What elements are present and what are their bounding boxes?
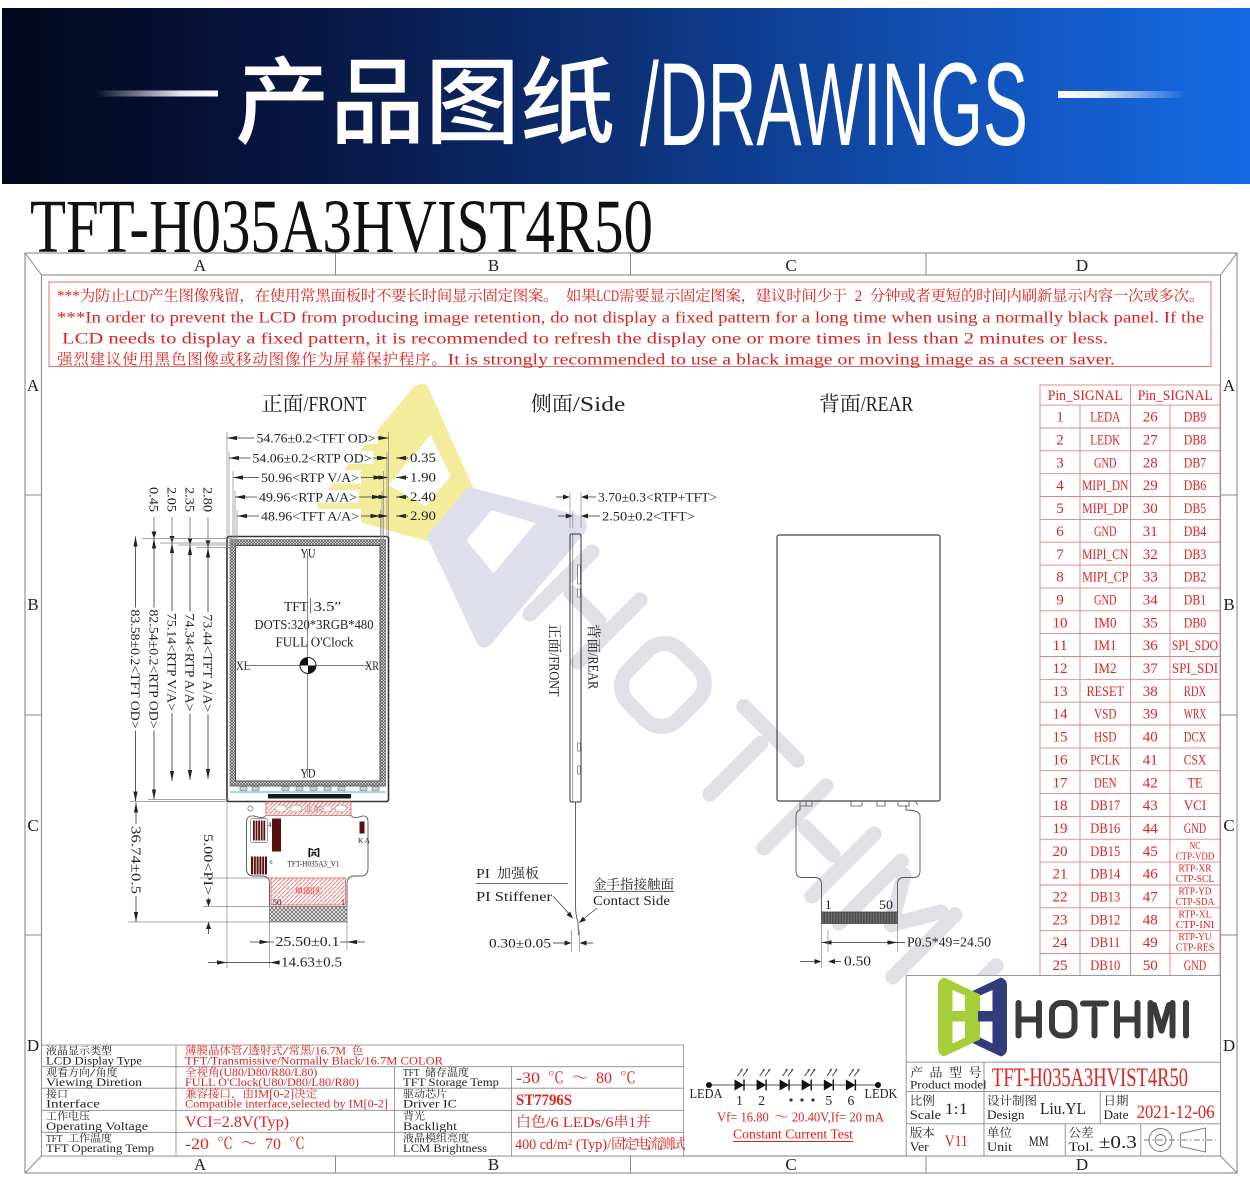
svg-text:1: 1 [825,897,832,912]
svg-text:/REAR: /REAR [861,392,914,416]
svg-text:6: 6 [1056,524,1064,540]
svg-text:GND: GND [1094,455,1117,471]
svg-text:MIPI_CN: MIPI_CN [1082,547,1128,563]
svg-text:14: 14 [1053,707,1069,723]
svg-text:18: 18 [1053,798,1068,814]
svg-text:IM2: IM2 [1094,661,1117,677]
svg-text:36.74±0.5: 36.74±0.5 [129,826,144,894]
svg-text:RDX: RDX [1184,684,1207,700]
svg-text:73.44<TFT A/A>: 73.44<TFT A/A> [201,614,215,712]
svg-text:3: 3 [1056,455,1064,471]
svg-text:54.76±0.2<TFT OD>: 54.76±0.2<TFT OD> [257,432,376,446]
svg-text:5: 5 [1056,501,1064,517]
svg-text:2.40: 2.40 [410,490,436,504]
svg-text:46: 46 [1143,867,1159,883]
svg-text:DB7: DB7 [1184,455,1207,471]
svg-text:TFT-H035A3HVIST4R50: TFT-H035A3HVIST4R50 [992,1063,1188,1092]
svg-text:Driver IC: Driver IC [403,1097,457,1111]
svg-text:MIPI_DN: MIPI_DN [1082,478,1128,494]
svg-text:Pin_SIGNAL: Pin_SIGNAL [1138,388,1213,404]
svg-text:CTP-SCL: CTP-SCL [1176,873,1215,885]
svg-text:TFT: TFT [284,600,308,615]
svg-text:1: 1 [341,898,345,907]
svg-text:37: 37 [1143,661,1159,677]
svg-text:V11: V11 [945,1133,968,1150]
svg-text:50.96<RTP V/A>: 50.96<RTP V/A> [261,471,359,485]
svg-text:P0.5*49=24.50: P0.5*49=24.50 [907,935,991,950]
svg-text:30: 30 [1143,501,1158,517]
svg-text:6: 6 [270,860,273,866]
svg-text:VCI: VCI [1184,798,1207,814]
svg-text:Date: Date [1104,1108,1129,1122]
svg-text:74.34<RTP A/A>: 74.34<RTP A/A> [183,614,197,712]
svg-text:4: 4 [1056,478,1064,494]
svg-text:***In order to prevent the LCD: ***In order to prevent the LCD from prod… [57,310,1204,327]
svg-text:A: A [1223,376,1236,395]
svg-text:RESET: RESET [1087,684,1125,700]
svg-text:It is strongly recommended to: It is strongly recommended to use a blac… [448,352,1115,369]
svg-text:DCX: DCX [1184,730,1207,746]
svg-text:±0.3: ±0.3 [1099,1132,1137,1152]
svg-text:4: 4 [268,821,272,829]
svg-text:Viewing Diretion: Viewing Diretion [46,1075,142,1089]
svg-text:LEDA: LEDA [1090,410,1120,426]
svg-text:TFT Operating Temp: TFT Operating Temp [46,1141,154,1155]
svg-text:SPI_SDI: SPI_SDI [1172,661,1218,677]
svg-text:Liu.YL: Liu.YL [1040,1099,1086,1118]
svg-text:DB1: DB1 [1184,592,1207,608]
svg-text:TFT Storage Temp: TFT Storage Temp [403,1075,499,1089]
svg-text:DB9: DB9 [1184,410,1207,426]
svg-text:10: 10 [1053,615,1068,631]
svg-text:9: 9 [1056,592,1064,608]
svg-text:80: 80 [596,1070,612,1087]
svg-text:TFT/Transmissive/Normally Blac: TFT/Transmissive/Normally Black/16.7M CO… [185,1054,443,1068]
svg-text:48: 48 [1143,912,1158,928]
svg-text:29: 29 [1143,478,1158,494]
svg-text:C: C [27,816,38,835]
svg-text:26: 26 [1143,410,1159,426]
svg-text:Constant Current Test: Constant Current Test [733,1127,853,1142]
svg-text:D: D [27,1036,39,1055]
svg-text:44: 44 [1143,821,1159,837]
svg-text:40: 40 [1143,730,1158,746]
svg-text:42: 42 [1143,775,1158,791]
svg-text:-30: -30 [516,1070,540,1087]
svg-text:83.58±0.2<TFT OD>: 83.58±0.2<TFT OD> [128,610,142,729]
svg-text:14.63±0.5: 14.63±0.5 [281,955,342,970]
svg-text:B: B [1223,595,1234,614]
svg-text:C: C [785,256,796,275]
svg-text:CTP-INI: CTP-INI [1176,919,1215,931]
svg-text:D: D [1076,1155,1088,1174]
svg-text:SPI_SDO: SPI_SDO [1172,638,1218,654]
svg-text:Ver: Ver [910,1140,930,1154]
svg-text:DB14: DB14 [1090,867,1120,883]
svg-text:DB6: DB6 [1184,478,1207,494]
svg-text:13: 13 [1053,684,1068,700]
svg-text:CTP-VDD: CTP-VDD [1176,850,1215,862]
svg-text:Unit: Unit [987,1140,1013,1154]
svg-text:***: *** [57,288,80,305]
svg-text:5.00<PI>: 5.00<PI> [201,834,215,895]
svg-text:48.96<TFT A/A>: 48.96<TFT A/A> [261,510,359,524]
svg-text:400 cd/m² (Typ)/: 400 cd/m² (Typ)/ [515,1137,612,1153]
svg-text:25: 25 [1053,958,1068,974]
svg-text:PI: PI [476,867,490,882]
svg-text:36: 36 [1143,638,1159,654]
svg-text:2.35: 2.35 [183,487,197,512]
svg-text:2.90: 2.90 [410,509,436,523]
svg-text:17: 17 [1053,775,1069,791]
svg-text:LEDA: LEDA [690,1087,724,1102]
svg-text:DB5: DB5 [1184,501,1207,517]
svg-text:LCD Display Type: LCD Display Type [46,1054,142,1068]
svg-text:35: 35 [1143,615,1158,631]
svg-text:50: 50 [1143,958,1158,974]
svg-text:DB13: DB13 [1090,890,1120,906]
svg-text:C: C [785,1155,796,1174]
svg-text:34: 34 [1143,592,1159,608]
svg-text:TE: TE [1188,775,1203,791]
svg-text:CTP-RES: CTP-RES [1176,942,1215,954]
svg-text:28: 28 [1143,455,1158,471]
svg-text:2.80: 2.80 [201,487,215,512]
svg-text:YD: YD [301,766,316,781]
svg-text:82.54±0.2<RTP OD>: 82.54±0.2<RTP OD> [147,610,161,729]
svg-text:45: 45 [1143,844,1158,860]
svg-text:0.30±0.05: 0.30±0.05 [489,936,551,951]
svg-text:DB16: DB16 [1090,821,1120,837]
svg-text:2.50±0.2<TFT>: 2.50±0.2<TFT> [602,509,695,524]
svg-text:K A: K A [358,837,370,845]
svg-text:/DRAWINGS: /DRAWINGS [640,39,1028,171]
svg-text:0.50: 0.50 [844,954,871,969]
svg-text:TFT-H035A3_V1: TFT-H035A3_V1 [288,860,340,869]
svg-text:/FRONT: /FRONT [304,392,367,416]
svg-text:31: 31 [1143,524,1158,540]
svg-text:GND: GND [1094,592,1117,608]
svg-text:VSD: VSD [1094,707,1117,723]
svg-text:Interface: Interface [46,1097,100,1111]
svg-text:MIPI_DP: MIPI_DP [1082,501,1128,517]
svg-text:A: A [194,1155,207,1174]
svg-text:HSD: HSD [1094,730,1117,746]
svg-text:-20: -20 [185,1136,209,1153]
svg-text:DOTS:320*3RGB*480: DOTS:320*3RGB*480 [255,618,374,633]
svg-text:/FRONT: /FRONT [546,653,562,697]
svg-text:LEDK: LEDK [1090,433,1120,449]
svg-text:DB11: DB11 [1090,935,1120,951]
svg-text:21: 21 [1053,867,1068,883]
svg-text:DB8: DB8 [1184,433,1207,449]
svg-text:LCD needs to display a fixed p: LCD needs to display a fixed pattern, it… [62,331,1108,348]
svg-text:43: 43 [1143,798,1158,814]
svg-text:DB17: DB17 [1090,798,1120,814]
svg-text:19: 19 [1053,821,1068,837]
svg-text:DB10: DB10 [1090,958,1120,974]
svg-text:Design: Design [987,1108,1025,1122]
svg-text:Scale: Scale [910,1108,942,1122]
svg-text:TFT-H035A3HVIST4R50: TFT-H035A3HVIST4R50 [30,185,653,269]
svg-text:3.70±0.3<RTP+TFT>: 3.70±0.3<RTP+TFT> [598,490,717,505]
svg-text:GND: GND [1184,821,1207,837]
svg-text:41: 41 [1143,752,1158,768]
svg-text:LEDK: LEDK [865,1087,898,1102]
svg-text:1: 1 [736,1093,743,1108]
svg-text:B: B [488,256,499,275]
svg-text:GND: GND [1184,958,1207,974]
svg-text:XL: XL [236,658,250,673]
svg-text:2: 2 [1056,433,1064,449]
svg-text:1: 1 [629,1115,637,1131]
svg-text:ST7796S: ST7796S [516,1092,572,1109]
svg-text:20: 20 [1053,844,1068,860]
svg-text:DB12: DB12 [1090,912,1120,928]
svg-text:FULL O'Clock(U80/D80/L80/R80): FULL O'Clock(U80/D80/L80/R80) [185,1075,359,1089]
svg-text:DB3: DB3 [1184,547,1207,563]
svg-text:2: 2 [758,1093,765,1108]
svg-text:24: 24 [1053,935,1069,951]
svg-text:GND: GND [1094,524,1117,540]
svg-text:1.90: 1.90 [410,471,436,485]
svg-text:Tol.: Tol. [1069,1140,1094,1154]
svg-text:33: 33 [1143,570,1158,586]
svg-text:LCD: LCD [596,288,619,305]
svg-text:7: 7 [1056,547,1064,563]
svg-text:11: 11 [1053,638,1068,654]
svg-text:27: 27 [1143,433,1159,449]
svg-text:54.06±0.2<RTP OD>: 54.06±0.2<RTP OD> [253,452,372,466]
svg-text:0.35: 0.35 [410,451,436,465]
svg-text:A: A [27,376,40,395]
svg-text:2.05: 2.05 [165,487,179,512]
svg-text:C: C [1223,816,1234,835]
svg-text:0.45: 0.45 [147,487,161,512]
svg-text:CTP-SDA: CTP-SDA [1176,896,1215,908]
svg-text:15: 15 [1053,730,1068,746]
svg-text:IM0: IM0 [1094,615,1117,631]
svg-text:B: B [27,595,38,614]
svg-text:DB0: DB0 [1184,615,1207,631]
svg-text:DB4: DB4 [1184,524,1207,540]
svg-text:2021-12-06: 2021-12-06 [1137,1102,1215,1123]
svg-text:25.50±0.1: 25.50±0.1 [276,934,340,949]
svg-text:/Side: /Side [573,392,626,416]
svg-text:75.14<RTP V/A>: 75.14<RTP V/A> [165,613,179,711]
svg-text:12: 12 [1053,661,1068,677]
svg-text:IM1: IM1 [1094,638,1117,654]
svg-text:DB2: DB2 [1184,570,1207,586]
svg-text:50: 50 [273,898,282,907]
svg-text:22: 22 [1053,890,1068,906]
svg-text:1:1: 1:1 [945,1101,968,1118]
svg-text:MM: MM [1029,1134,1049,1150]
svg-text:50: 50 [879,897,893,912]
svg-text:39: 39 [1143,707,1158,723]
svg-text:MIPI_CP: MIPI_CP [1082,570,1128,586]
svg-text:PCLK: PCLK [1090,752,1120,768]
svg-text:Compatible interface,selected: Compatible interface,selected by IM[0-2] [185,1097,388,1111]
svg-text:D: D [1076,256,1088,275]
svg-text:FULL O'Clock: FULL O'Clock [276,636,354,651]
svg-text:DEN: DEN [1094,775,1117,791]
svg-text:B: B [488,1155,499,1174]
svg-text:3.5″: 3.5″ [314,600,342,615]
svg-text:5: 5 [825,1093,832,1108]
svg-text:23: 23 [1053,912,1068,928]
svg-text:Pin_SIGNAL: Pin_SIGNAL [1048,388,1123,404]
svg-text:XR: XR [365,658,379,673]
svg-text:49: 49 [1143,935,1158,951]
svg-text:6: 6 [848,1093,855,1108]
svg-text:VCI=2.8V(Typ): VCI=2.8V(Typ) [185,1114,289,1131]
svg-text:WRX: WRX [1184,707,1207,723]
svg-text:Contact Side: Contact Side [593,893,670,908]
svg-text:A: A [194,256,207,275]
svg-text:16: 16 [1053,752,1069,768]
svg-text:D: D [1223,1036,1235,1055]
svg-text:CSX: CSX [1184,752,1207,768]
svg-text:Backlight: Backlight [403,1119,458,1133]
svg-text:Vf= 16.80: Vf= 16.80 [717,1110,769,1125]
svg-text:PI Stiffener: PI Stiffener [476,890,552,905]
svg-text:DB15: DB15 [1090,844,1120,860]
svg-text:Product model: Product model [910,1078,987,1092]
svg-text:/6 LEDs/6: /6 LEDs/6 [546,1115,614,1131]
svg-text:Operating Voltage: Operating Voltage [46,1119,148,1133]
svg-text:8: 8 [1056,570,1064,586]
svg-text:YU: YU [301,546,316,561]
svg-text:/REAR: /REAR [585,653,601,689]
svg-text:LCM Brightness: LCM Brightness [403,1141,487,1155]
svg-text:LCD: LCD [125,288,148,305]
svg-text:38: 38 [1143,684,1158,700]
svg-text:49.96<RTP A/A>: 49.96<RTP A/A> [259,491,357,505]
svg-text:70: 70 [265,1136,281,1153]
svg-text:1: 1 [1056,410,1064,426]
svg-text:32: 32 [1143,547,1158,563]
svg-text:20.40V,If= 20 mA: 20.40V,If= 20 mA [792,1110,884,1125]
svg-text:2: 2 [855,288,863,305]
svg-text:47: 47 [1143,890,1159,906]
